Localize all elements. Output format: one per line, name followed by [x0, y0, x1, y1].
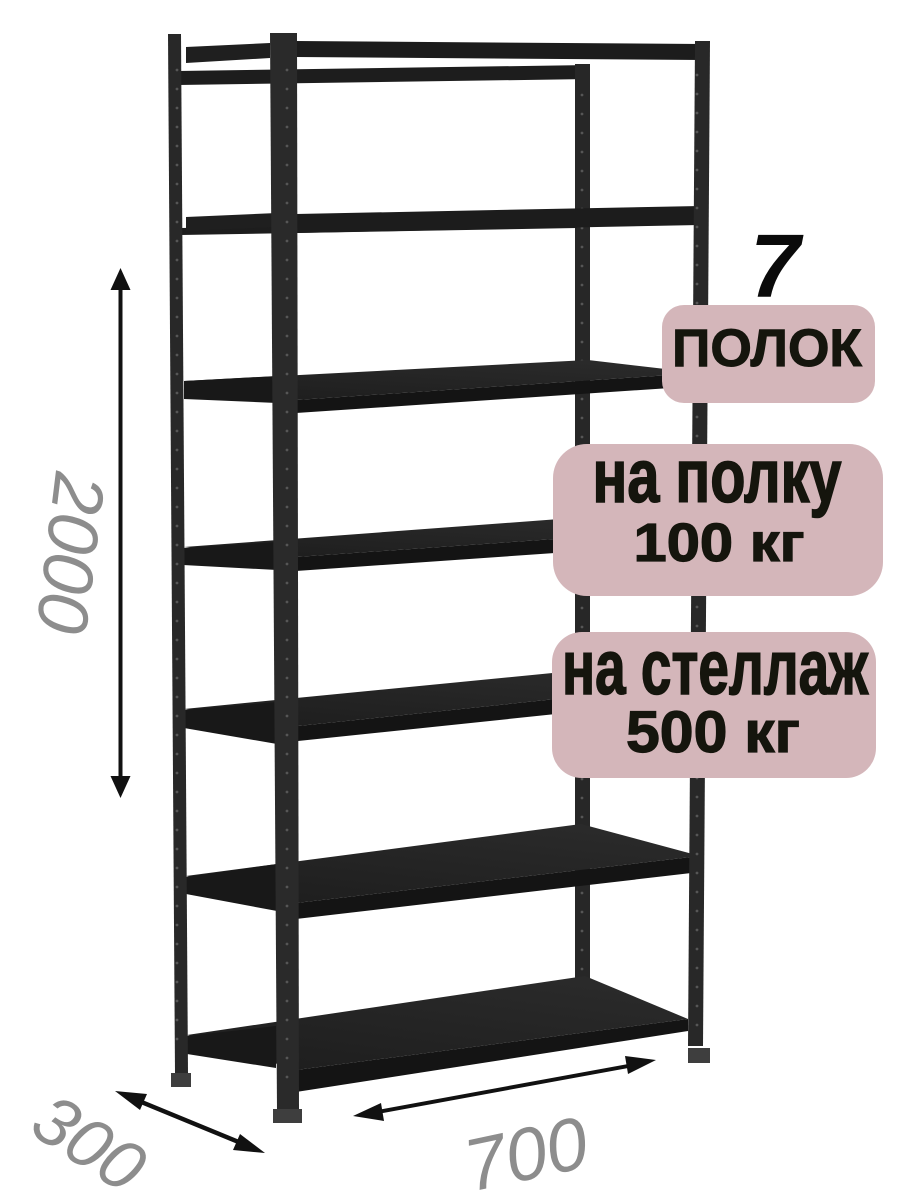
svg-text:700: 700 — [457, 1101, 595, 1200]
svg-text:500 кг: 500 кг — [626, 700, 800, 765]
svg-text:2000: 2000 — [21, 468, 120, 638]
svg-text:ПОЛОК: ПОЛОК — [672, 319, 863, 378]
svg-text:на полку: на полку — [593, 434, 842, 518]
svg-text:7: 7 — [750, 217, 804, 317]
svg-text:на стеллаж: на стеллаж — [562, 625, 869, 711]
svg-text:100 кг: 100 кг — [634, 513, 805, 573]
